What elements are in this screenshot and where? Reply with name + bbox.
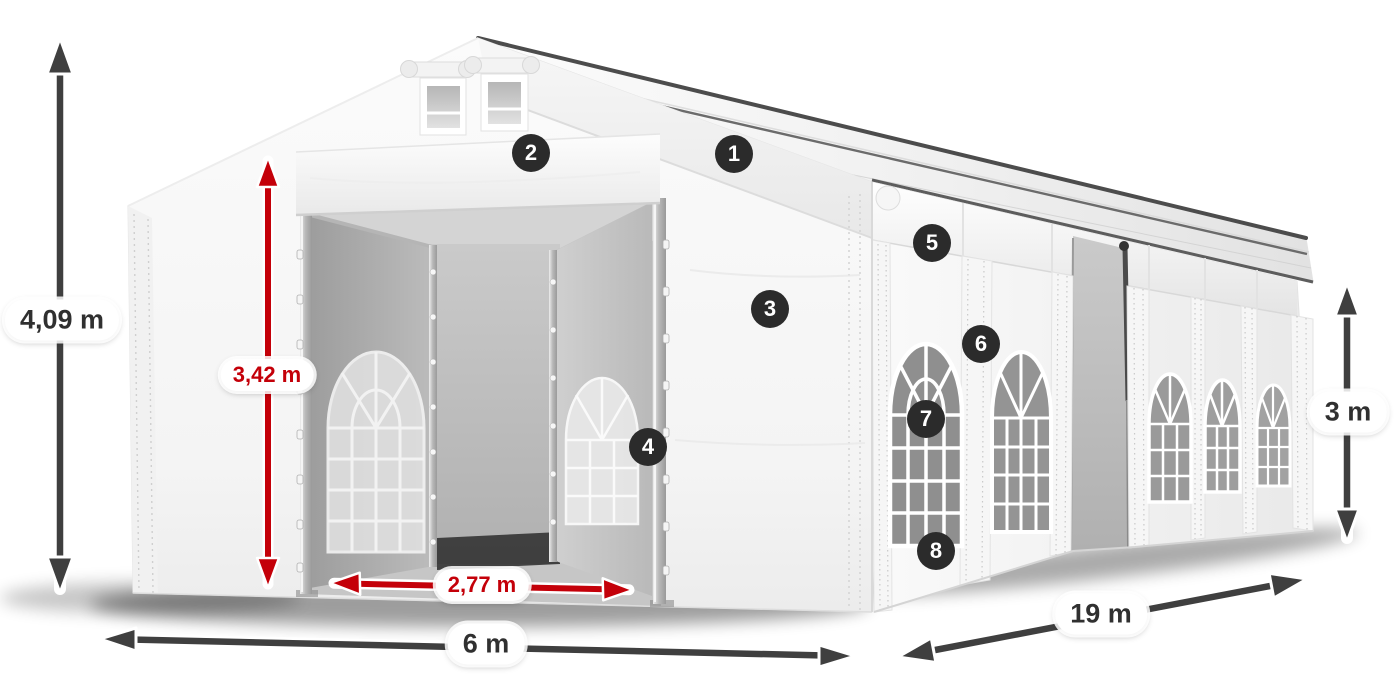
side-window: [992, 352, 1051, 532]
entrance-opening: [300, 196, 665, 608]
side-door-opening: [1071, 236, 1129, 552]
part-badge-6: 6: [962, 325, 1000, 363]
part-badge-2: 2: [512, 134, 550, 172]
valance-roll-cap: [876, 186, 900, 210]
tent-illustration: [0, 0, 1400, 700]
inner-door-right: [549, 202, 652, 596]
interior-ground-shadow: [437, 532, 560, 570]
inner-window: [328, 352, 424, 552]
inner-door-left: [310, 216, 437, 588]
side-window: [1257, 385, 1290, 486]
part-badge-3: 3: [751, 290, 789, 328]
length-label: 19 m: [1055, 594, 1147, 635]
part-badge-8: 8: [917, 532, 955, 570]
side-window: [1205, 380, 1240, 492]
part-badge-4: 4: [629, 428, 667, 466]
tent-dimension-diagram: 4,09 m 3,42 m 2,77 m 6 m 19 m 3 m 1 2 3 …: [0, 0, 1400, 700]
part-badge-1: 1: [715, 135, 753, 173]
width-label: 6 m: [448, 624, 525, 665]
part-badge-7: 7: [907, 400, 945, 438]
side-window: [1149, 374, 1191, 502]
side-window: [890, 344, 962, 546]
inner-window: [566, 378, 638, 524]
inner-height-label: 3,42 m: [221, 359, 314, 391]
side-height-label: 3 m: [1310, 392, 1387, 433]
interior-back: [430, 244, 560, 564]
part-badge-5: 5: [913, 224, 951, 262]
entrance-width-label: 2,77 m: [436, 569, 529, 601]
total-height-label: 4,09 m: [5, 300, 119, 341]
